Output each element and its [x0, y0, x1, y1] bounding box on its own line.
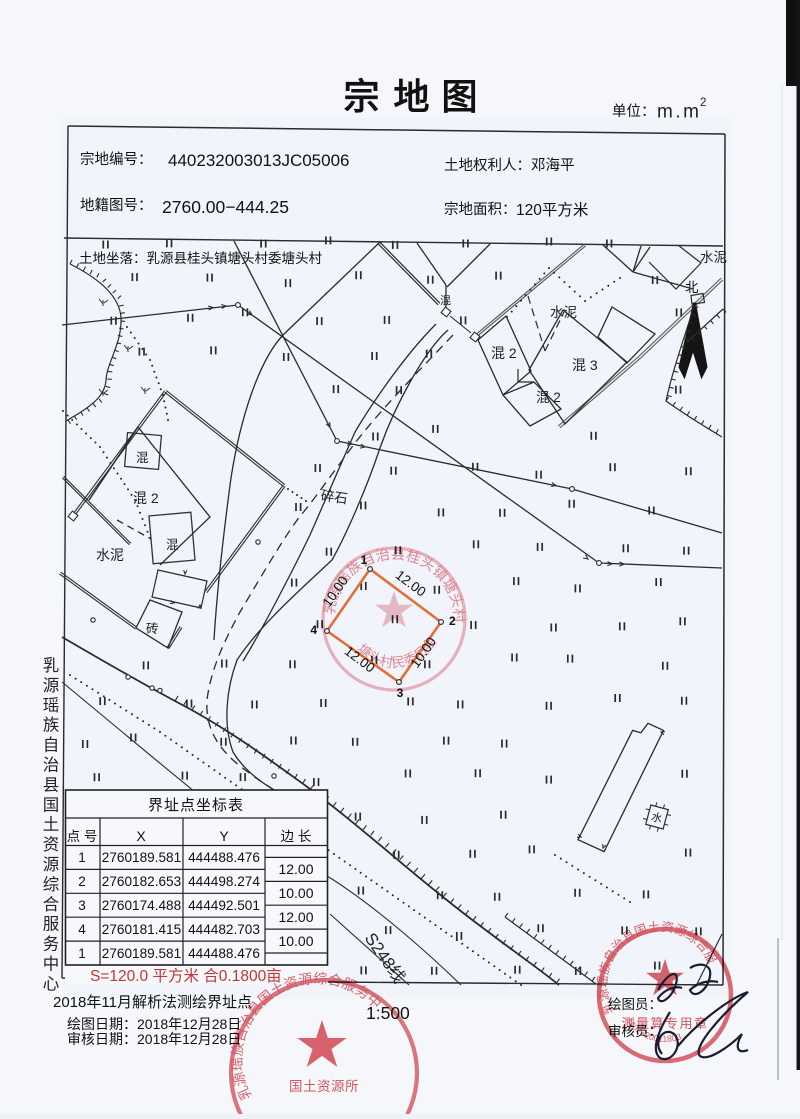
svg-text:砖: 砖	[146, 621, 159, 636]
svg-text:自: 自	[43, 736, 60, 755]
svg-text:国土资源所: 国土资源所	[289, 1079, 359, 1094]
svg-text:2760181.415: 2760181.415	[102, 922, 181, 937]
svg-text:混 2: 混 2	[133, 490, 159, 506]
svg-text:2760174.488: 2760174.488	[102, 898, 181, 913]
svg-text:点 号: 点 号	[67, 829, 98, 844]
svg-text:10.00: 10.00	[278, 933, 313, 949]
svg-text:混: 混	[136, 451, 149, 465]
svg-text:地: 地	[393, 76, 429, 117]
svg-text:土地坐落：乳源县桂头镇塘头村委塘头村: 土地坐落：乳源县桂头镇塘头村委塘头村	[79, 251, 322, 266]
svg-text:务: 务	[43, 935, 60, 954]
svg-text:3: 3	[78, 898, 86, 913]
svg-text:混 2: 混 2	[536, 390, 561, 405]
svg-text:界址点坐标表: 界址点坐标表	[148, 797, 244, 814]
svg-text:绘图日期：2018年12月28日: 绘图日期：2018年12月28日	[67, 1016, 241, 1032]
svg-text:混: 混	[440, 294, 451, 307]
svg-text:服: 服	[43, 916, 60, 934]
svg-text:混: 混	[166, 538, 179, 552]
svg-text:县: 县	[43, 776, 60, 794]
svg-text:m.m: m.m	[657, 102, 701, 123]
svg-text:4: 4	[78, 922, 86, 937]
svg-text:2: 2	[700, 97, 706, 109]
svg-text:族: 族	[43, 716, 60, 735]
svg-text:土地权利人：邓海平: 土地权利人：邓海平	[444, 157, 575, 174]
svg-text:水泥: 水泥	[550, 305, 577, 320]
svg-text:水泥: 水泥	[700, 250, 727, 265]
svg-text:水泥: 水泥	[96, 547, 124, 563]
svg-text:120平方米: 120平方米	[516, 201, 588, 219]
svg-text:图: 图	[441, 76, 477, 117]
svg-text:国: 国	[43, 796, 60, 814]
svg-text:3: 3	[397, 686, 404, 700]
svg-text:1: 1	[78, 946, 86, 961]
svg-text:440232003013JC05006: 440232003013JC05006	[168, 151, 350, 170]
svg-text:12.00: 12.00	[278, 861, 313, 877]
svg-text:1: 1	[361, 553, 368, 567]
svg-text:审核日期：2018年12月28日: 审核日期：2018年12月28日	[67, 1031, 241, 1047]
svg-text:合: 合	[43, 895, 60, 914]
svg-text:444498.274: 444498.274	[188, 874, 260, 889]
svg-text:土: 土	[43, 815, 60, 834]
svg-text:Y: Y	[219, 828, 229, 844]
svg-text:444488.476: 444488.476	[188, 850, 260, 865]
svg-text:地籍图号：: 地籍图号：	[80, 197, 153, 214]
svg-text:2760189.581: 2760189.581	[102, 946, 181, 961]
svg-text:10.00: 10.00	[278, 885, 313, 901]
svg-text:2: 2	[449, 614, 456, 628]
svg-text:宗: 宗	[343, 76, 379, 117]
svg-text:2018年11月解析法测绘界址点: 2018年11月解析法测绘界址点	[53, 994, 252, 1011]
svg-text:1: 1	[78, 850, 86, 865]
svg-text:综: 综	[43, 875, 60, 894]
svg-text:2760189.581: 2760189.581	[102, 850, 181, 865]
svg-text:12.00: 12.00	[278, 909, 313, 925]
svg-text:宗地面积：: 宗地面积：	[444, 201, 517, 218]
svg-text:混 3: 混 3	[572, 357, 598, 373]
svg-text:心: 心	[43, 974, 60, 993]
svg-text:源: 源	[43, 676, 60, 695]
svg-text:宗地编号：: 宗地编号：	[80, 151, 153, 168]
svg-text:瑶: 瑶	[43, 696, 60, 715]
svg-text:2: 2	[78, 874, 86, 889]
svg-text:边 长: 边 长	[281, 829, 312, 844]
svg-text:444488.476: 444488.476	[188, 946, 260, 961]
svg-text:资: 资	[43, 835, 60, 854]
svg-text:中: 中	[43, 955, 60, 974]
svg-text:444482.703: 444482.703	[188, 922, 260, 937]
svg-text:444492.501: 444492.501	[188, 898, 260, 913]
svg-text:乳: 乳	[43, 656, 60, 675]
svg-text:4: 4	[310, 623, 317, 637]
svg-text:2760.00−444.25: 2760.00−444.25	[162, 197, 289, 217]
svg-text:S=120.0 平方米 合0.1800亩: S=120.0 平方米 合0.1800亩	[90, 967, 282, 985]
svg-text:源: 源	[43, 855, 60, 874]
svg-text:2760182.653: 2760182.653	[102, 874, 181, 889]
svg-text:混 2: 混 2	[491, 345, 517, 361]
svg-text:单位：: 单位：	[612, 103, 656, 120]
svg-text:治: 治	[43, 756, 60, 775]
svg-text:X: X	[136, 828, 146, 844]
